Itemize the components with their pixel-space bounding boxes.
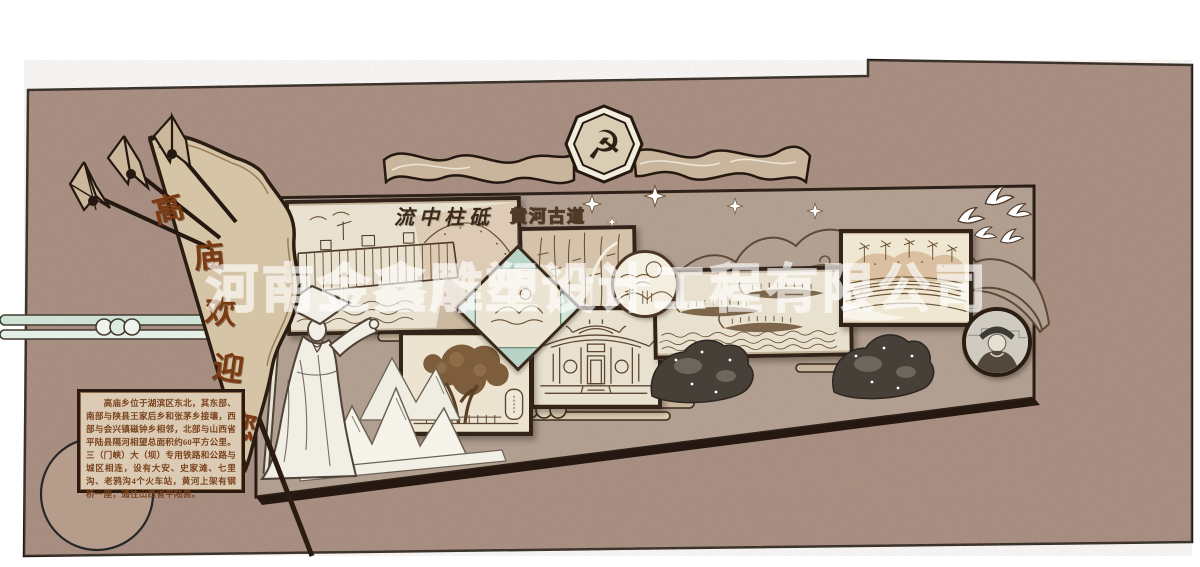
party-emblem-icon: ☭ xyxy=(586,123,622,169)
foliage-cluster-left xyxy=(651,340,753,402)
intro-text: 高庙乡位于湖滨区东北，其东部、南部与陕县王家后乡和张茅乡接壤，西部与会兴镇磁钟乡… xyxy=(86,398,236,499)
flag-char-4: 迎 xyxy=(210,341,247,390)
doves-icon xyxy=(958,185,1032,243)
flag-char-3: 欢 xyxy=(204,286,237,333)
sparkle-icons xyxy=(583,186,823,227)
foliage-cluster-right xyxy=(833,335,934,399)
intro-text-panel: 高庙乡位于湖滨区东北，其东部、南部与陕县王家后乡和张茅乡接壤，西部与会兴镇磁钟乡… xyxy=(77,389,245,493)
ribbon-banner: ☭ xyxy=(384,106,810,183)
design-rendering: 流中柱砥 黄河古道 xyxy=(0,0,1200,567)
flag-char-2: 庙 xyxy=(191,230,226,278)
